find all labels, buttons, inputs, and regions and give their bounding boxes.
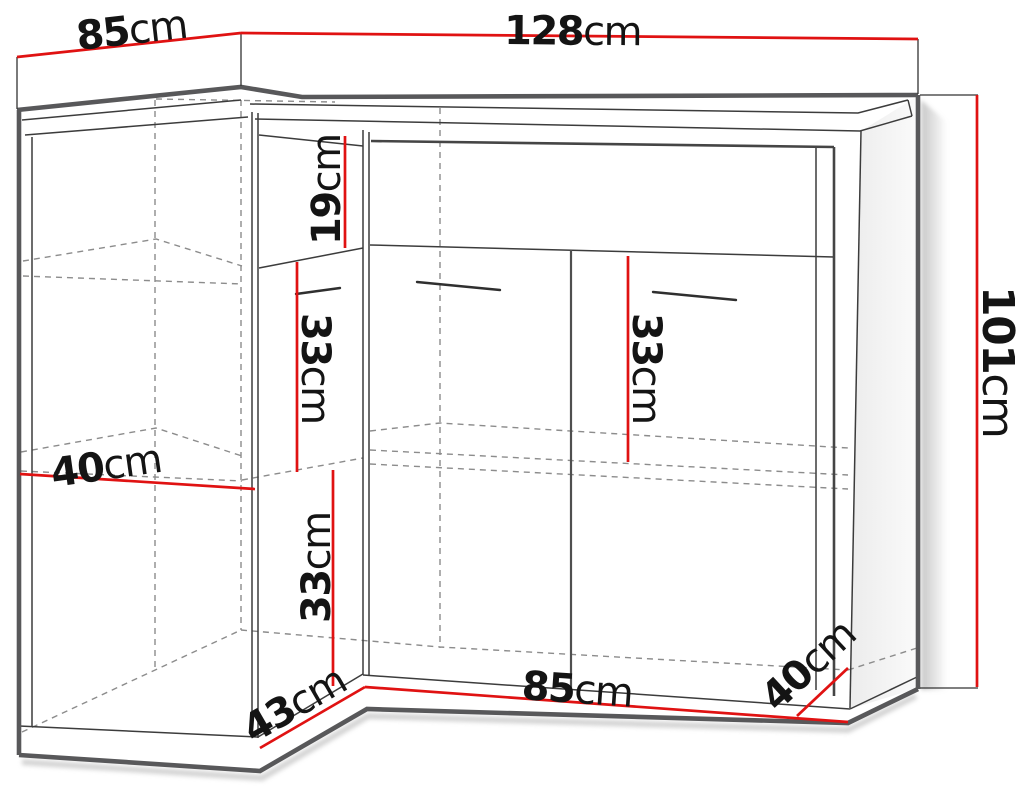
- dimension-value: 85: [520, 663, 576, 713]
- carcass-rim-main: [255, 116, 912, 131]
- door-handles: [296, 282, 736, 300]
- carcass-rim-left: [25, 117, 248, 135]
- dimension-unit: cm: [972, 373, 1020, 437]
- dimension-unit: cm: [583, 9, 641, 56]
- label-corner-front-width: 43cm: [235, 658, 354, 753]
- dimension-value: 33: [623, 313, 669, 366]
- diagram-canvas: 85cm 128cm 101cm 19cm 33cm 33cm 40cm 33c…: [0, 0, 1020, 792]
- dimension-value: 19: [304, 192, 350, 245]
- dimension-unit: cm: [294, 512, 340, 570]
- label-left-shelf-depth: 40cm: [48, 436, 164, 497]
- right-door-handle: [653, 292, 736, 300]
- dimension-value: 128: [504, 8, 583, 55]
- hidden-corner-shelf-front-edge: [242, 458, 363, 480]
- dimension-unit: cm: [304, 134, 350, 192]
- label-corner-upper-shelf-height: 33cm: [292, 313, 338, 424]
- top-panel-edge-left: [22, 100, 241, 120]
- hidden-main-shelf-front-edge: [370, 450, 848, 475]
- hidden-main-shelf-bottom-edge: [370, 464, 848, 489]
- hidden-interior-edges: [21, 99, 917, 732]
- right-drop-shadow: [921, 100, 947, 690]
- dimension-unit: cm: [100, 436, 164, 490]
- corner-door-handle: [296, 288, 340, 294]
- hidden-main-shelf-back-edge: [370, 423, 848, 448]
- dimension-value: 101: [972, 286, 1020, 373]
- plinth-top-left: [19, 726, 258, 737]
- hidden-floor-left-edge: [22, 630, 241, 732]
- top-panel-edge-main: [250, 100, 908, 113]
- label-front-width: 85cm: [520, 663, 634, 717]
- dimension-value: 40: [48, 444, 107, 497]
- corner-divider-edge: [259, 248, 363, 268]
- dimension-unit: cm: [126, 2, 189, 54]
- label-top-left-width: 85cm: [74, 2, 189, 60]
- hidden-upper-shelf-front-edge: [23, 276, 242, 284]
- label-corner-lower-shelf-height: 33cm: [294, 512, 340, 623]
- hidden-upper-shelf-back-edges: [23, 239, 242, 266]
- label-top-width: 128cm: [504, 8, 641, 55]
- dimension-unit: cm: [292, 366, 338, 424]
- left-door-handle: [417, 282, 500, 290]
- dimension-value: 33: [294, 570, 340, 623]
- hidden-top-back-edge: [156, 99, 335, 102]
- label-front-shelf-height: 33cm: [623, 313, 669, 424]
- dimension-value: 33: [292, 313, 338, 366]
- label-height: 101cm: [972, 286, 1020, 437]
- dimension-value: 85: [74, 8, 132, 60]
- cabinet-structure: [19, 100, 917, 738]
- label-top-niche-height: 19cm: [304, 134, 350, 245]
- cabinet-dimension-diagram: 85cm 128cm 101cm 19cm 33cm 33cm 40cm 33c…: [0, 0, 1020, 792]
- dimension-unit: cm: [573, 667, 634, 717]
- dimension-unit: cm: [623, 366, 669, 424]
